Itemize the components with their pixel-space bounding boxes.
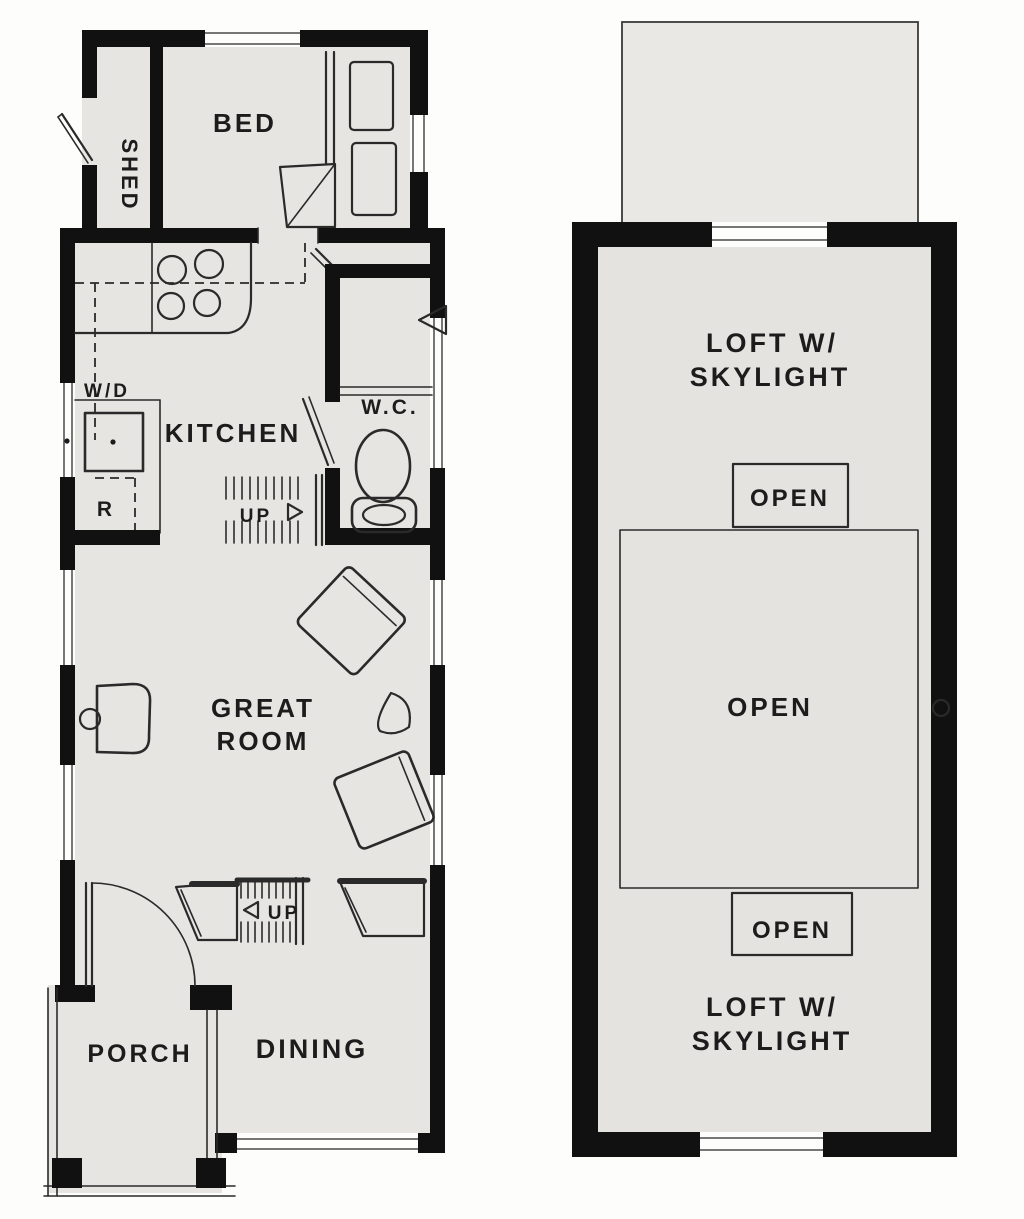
loft-bottom-window <box>700 1132 823 1157</box>
loft-top-window <box>712 222 827 247</box>
shed-label: SHED <box>117 138 142 211</box>
loft-top-label-line1: LOFT W/ <box>706 328 838 358</box>
great-room-label-line1: GREAT <box>211 693 315 723</box>
bed-right-window <box>410 115 428 172</box>
left-wall-windows <box>60 383 75 860</box>
open-bottom-label: OPEN <box>752 917 832 944</box>
porch-post <box>196 1158 226 1188</box>
refrigerator-label: R <box>97 498 115 521</box>
kitchen-label: KITCHEN <box>165 418 302 448</box>
porch-label: PORCH <box>87 1040 192 1068</box>
wc-label: W.C. <box>361 396 419 419</box>
floor-plan: UP <box>0 0 1024 1219</box>
loft-bottom-label-line1: LOFT W/ <box>706 992 838 1022</box>
porch-post <box>52 1158 82 1188</box>
roof-outline <box>622 22 918 228</box>
entry-stair-up-label: UP <box>268 903 300 924</box>
loft-plan: LOFT W/ SKYLIGHT OPEN OPEN OPEN LOFT W/ … <box>572 22 957 1157</box>
bed-top-window <box>205 30 300 47</box>
great-room-label-line2: ROOM <box>217 726 310 756</box>
right-wall-windows <box>430 318 445 865</box>
first-floor-plan: UP <box>44 30 446 1196</box>
open-center-label: OPEN <box>727 692 813 722</box>
kitchen-stair-up-label: UP <box>240 506 272 527</box>
dining-label: DINING <box>256 1034 369 1064</box>
floor-plan-page: UP <box>0 0 1024 1219</box>
dining-window <box>237 1133 418 1153</box>
open-top-label: OPEN <box>750 485 830 512</box>
washer-dryer-label: W/D <box>84 381 130 402</box>
loft-top-label-line2: SKYLIGHT <box>690 362 851 392</box>
loft-bottom-label-line2: SKYLIGHT <box>692 1026 853 1056</box>
bed-label: BED <box>213 108 277 138</box>
